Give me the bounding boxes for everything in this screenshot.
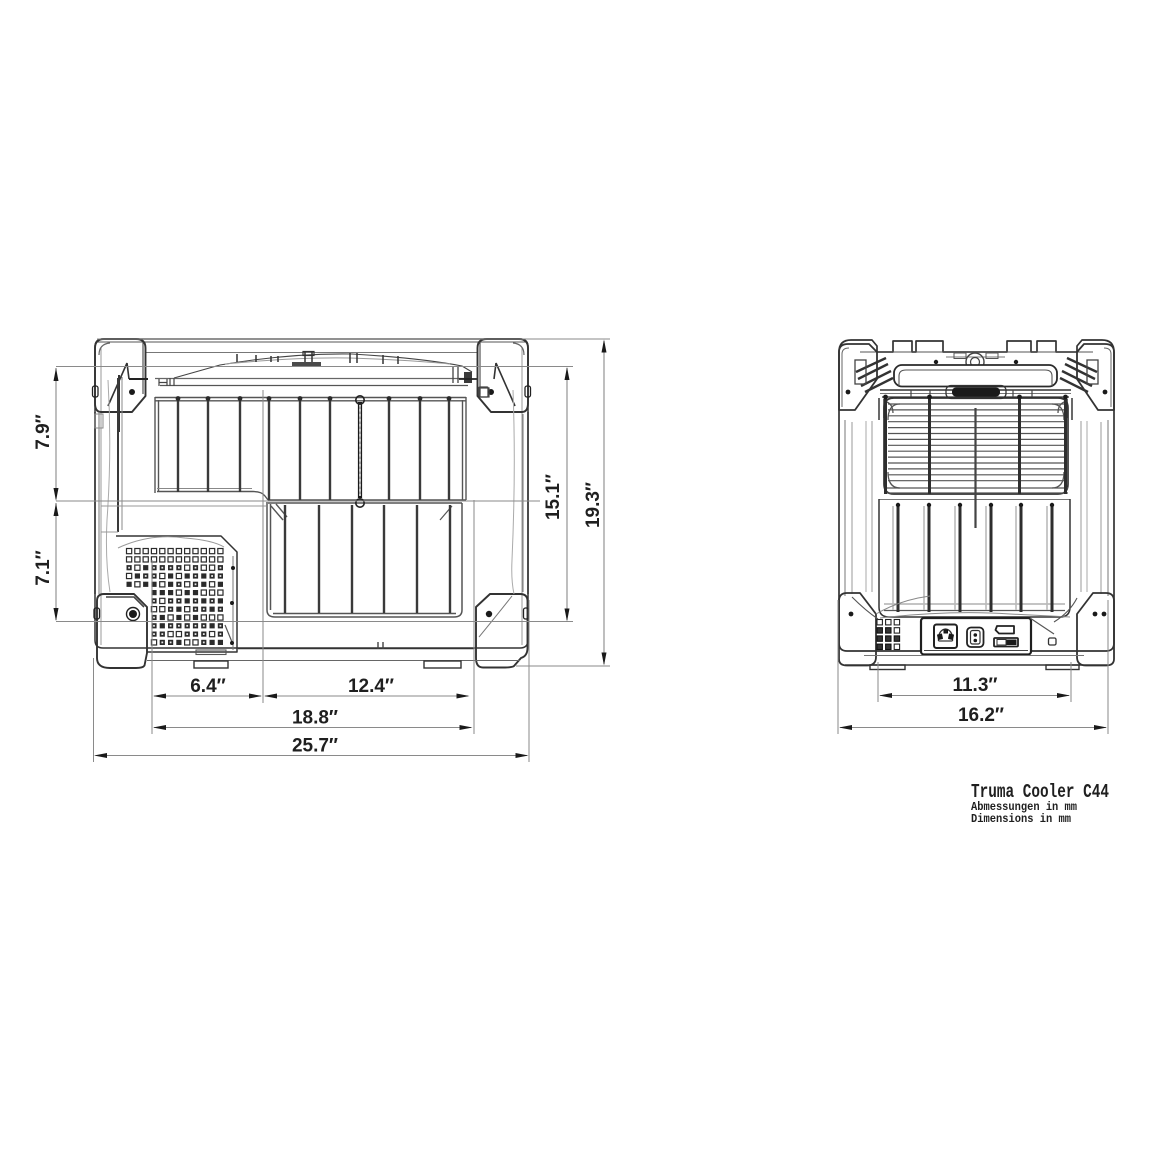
svg-text:7.1″: 7.1″: [33, 550, 54, 586]
svg-text:25.7″: 25.7″: [292, 736, 338, 757]
svg-text:Dimensions in mm: Dimensions in mm: [971, 812, 1071, 826]
svg-text:11.3″: 11.3″: [952, 675, 997, 696]
svg-text:18.8″: 18.8″: [292, 708, 338, 729]
svg-text:15.1″: 15.1″: [543, 474, 564, 520]
svg-text:7.9″: 7.9″: [33, 414, 54, 450]
svg-text:19.3″: 19.3″: [583, 482, 604, 528]
svg-text:6.4″: 6.4″: [190, 676, 226, 697]
svg-text:16.2″: 16.2″: [958, 705, 1004, 726]
svg-text:12.4″: 12.4″: [348, 676, 394, 697]
